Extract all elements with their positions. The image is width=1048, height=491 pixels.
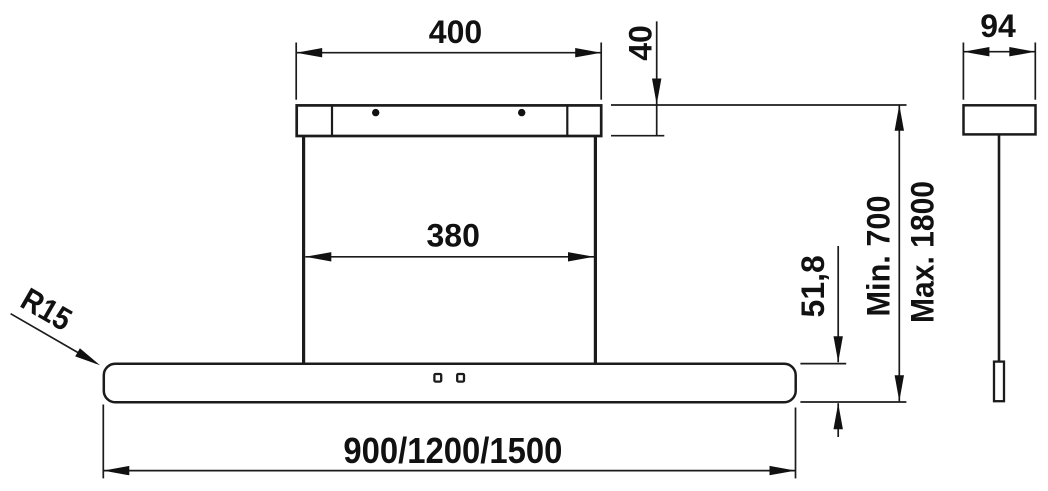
svg-text:Max. 1800: Max. 1800 — [905, 181, 941, 323]
svg-text:40: 40 — [623, 25, 659, 61]
svg-text:Min. 700: Min. 700 — [861, 196, 897, 317]
svg-text:380: 380 — [427, 217, 480, 253]
svg-text:94: 94 — [980, 8, 1016, 44]
svg-text:900/1200/1500: 900/1200/1500 — [343, 430, 562, 471]
svg-text:51,8: 51,8 — [795, 255, 831, 317]
svg-text:400: 400 — [429, 14, 482, 50]
